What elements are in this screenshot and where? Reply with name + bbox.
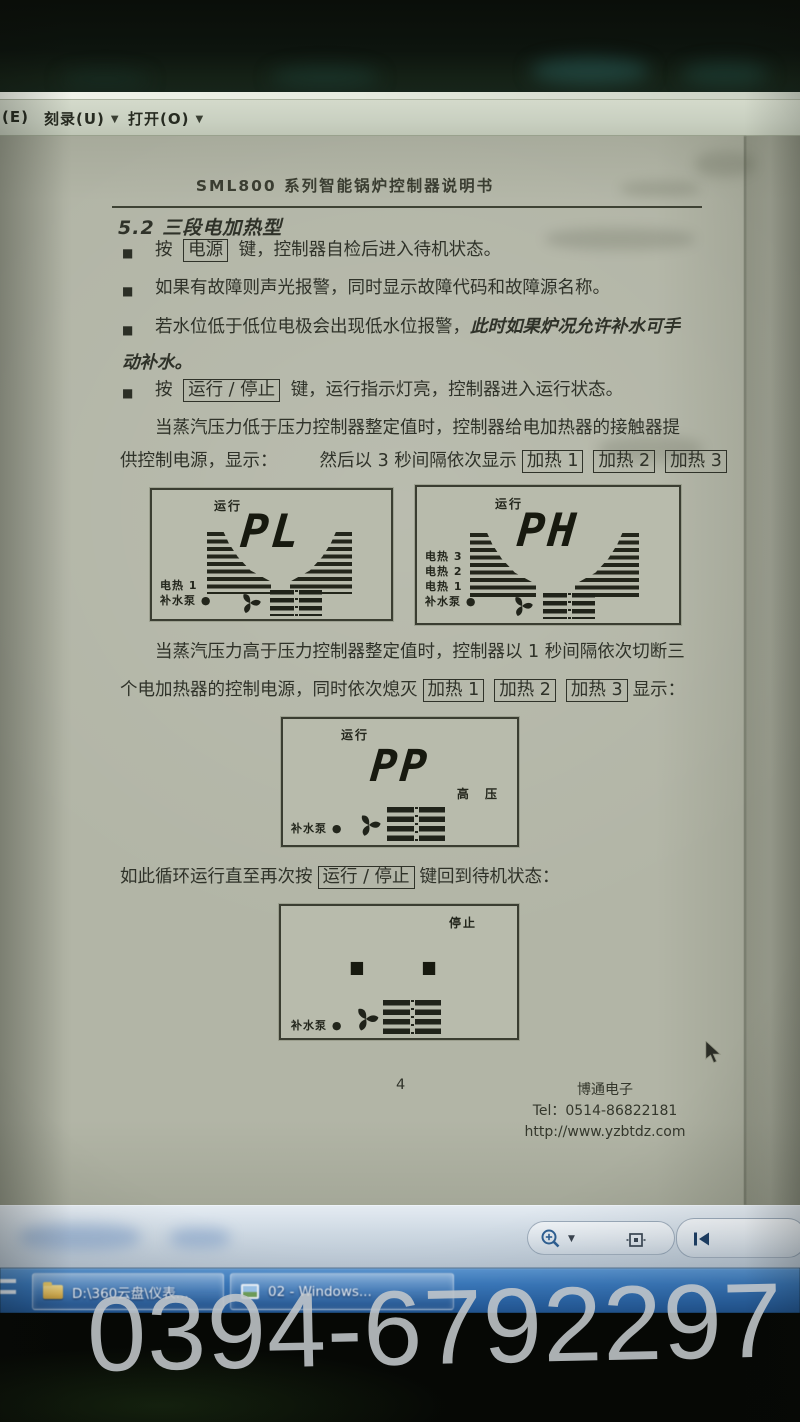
loop-line: 如此循环运行直至再次按运行 / 停止键回到待机状态：: [120, 866, 560, 889]
lcd-panel-pl: 运行 PL 电热 1 补水泵 ●: [150, 488, 393, 621]
publisher-tel: Tel：0514-86822181: [505, 1101, 705, 1122]
key-run-stop: 运行 / 停止: [183, 379, 280, 402]
key-heat1: 加热 1: [522, 450, 584, 473]
lcd-labels: 电热 3 电热 2 电热 1 补水泵 ●: [425, 549, 476, 609]
photo-viewer-toolbar: ▼: [0, 1205, 800, 1268]
bezel-reflection: [270, 66, 380, 88]
key-heat2: 加热 2: [593, 450, 655, 473]
toolbar-reflection: [20, 1224, 140, 1250]
lcd-labels: 电热 1 补水泵 ●: [160, 578, 211, 608]
para-high-line1: 当蒸汽压力高于压力控制器整定值时，控制器以 1 秒间隔依次切断三: [155, 641, 685, 664]
bullet-square-icon: ■: [122, 379, 155, 405]
chevron-down-icon: ▼: [111, 114, 119, 125]
key-power: 电源: [183, 239, 228, 262]
key-heat2: 加热 2: [494, 679, 556, 702]
zoom-button[interactable]: [540, 1228, 562, 1249]
key-heat3: 加热 3: [665, 450, 727, 473]
level-bars-icon: [387, 807, 445, 841]
toolbar-reflection: [170, 1228, 230, 1248]
bullet-lowwater-cont: 动补水。: [122, 352, 192, 375]
lcd-panel-standby: 停止 - - 补水泵 ●: [279, 904, 519, 1040]
magnifier-plus-icon: [540, 1228, 562, 1249]
document-page: SML800 系列智能锅炉控制器说明书 5.2 三段电加热型 ■ 按 电源 键，…: [0, 136, 800, 1205]
fan-icon: [509, 593, 535, 619]
window-top-edge: [0, 92, 800, 100]
menu-item-label: 刻录(U): [44, 108, 105, 129]
menu-item-open[interactable]: 打开(O) ▼: [128, 108, 203, 129]
level-bars-icon: [543, 593, 595, 619]
previous-button[interactable]: [693, 1231, 711, 1247]
bezel-reflection: [680, 62, 770, 86]
menu-item-label: (E): [2, 108, 29, 126]
lcd-labels: 补水泵 ●: [291, 821, 342, 836]
menu-item-label: 打开(O): [128, 108, 189, 129]
para-high-line2: 个电加热器的控制电源，同时依次熄灭加热 1加热 2加热 3显示：: [120, 679, 685, 702]
key-heat3: 加热 3: [566, 679, 628, 702]
page-number: 4: [396, 1077, 405, 1093]
level-bars-icon: [383, 1000, 441, 1034]
bullet-text: 若水位低于低位电极会出现低水位报警，此时如果炉况允许补水可手: [155, 316, 680, 342]
fan-icon: [355, 811, 383, 839]
menu-item-e[interactable]: (E): [2, 108, 29, 126]
actual-size-button[interactable]: [626, 1230, 646, 1250]
para-low-line1: 当蒸汽压力低于压力控制器整定值时，控制器给电加热器的接触器提: [155, 417, 680, 440]
key-run-stop: 运行 / 停止: [318, 866, 415, 889]
lcd-highpressure-label: 高 压: [457, 785, 503, 802]
bezel-reflection: [60, 70, 150, 88]
lcd-value: PL: [150, 504, 394, 558]
menu-bar: (E) 刻录(U) ▼ 打开(O) ▼: [0, 100, 800, 136]
actual-size-icon: [626, 1230, 646, 1250]
chevron-down-icon[interactable]: ▼: [568, 1234, 575, 1244]
level-bars-icon: [270, 590, 322, 616]
monitor-bezel-top: [0, 0, 800, 92]
bullet-fault: ■ 如果有故障则声光报警，同时显示故障代码和故障源名称。: [122, 277, 712, 303]
para-low-line2: 供控制电源，显示：然后以 3 秒间隔依次显示加热 1加热 2加热 3: [120, 450, 732, 473]
key-heat1: 加热 1: [423, 679, 485, 702]
doc-title: SML800 系列智能锅炉控制器说明书: [0, 174, 690, 196]
chevron-down-icon: ▼: [195, 114, 203, 125]
bullet-power: ■ 按 电源 键，控制器自检后进入待机状态。: [122, 239, 712, 265]
nav-group: [676, 1218, 800, 1258]
lcd-panel-pp: 运行 PP 高 压 补水泵 ●: [281, 717, 519, 847]
bullet-text: 按 电源 键，控制器自检后进入待机状态。: [155, 239, 501, 265]
watermark-phone-number: 0394-6792297: [86, 1267, 784, 1388]
zoom-fit-group: ▼: [527, 1221, 675, 1255]
bullet-lowwater: ■ 若水位低于低位电极会出现低水位报警，此时如果炉况允许补水可手: [122, 316, 712, 342]
bullet-square-icon: ■: [122, 316, 155, 342]
menu-item-burn[interactable]: 刻录(U) ▼: [44, 108, 119, 129]
photographed-screen: (E) 刻录(U) ▼ 打开(O) ▼ SML800 系列智能锅炉控制器说明书 …: [0, 0, 800, 1422]
ink-bleed: [695, 151, 755, 177]
section-title: 5.2 三段电加热型: [118, 213, 282, 240]
header-rule: [112, 206, 702, 208]
bullet-text: 按 运行 / 停止 键，运行指示灯亮，控制器进入运行状态。: [155, 379, 623, 405]
publisher-url: http://www.yzbtdz.com: [505, 1122, 705, 1143]
paper-edge-shadow: [746, 136, 800, 1205]
fan-icon: [351, 1004, 381, 1034]
bullet-text: 如果有故障则声光报警，同时显示故障代码和故障源名称。: [155, 277, 610, 303]
bullet-square-icon: ■: [122, 277, 155, 303]
bezel-reflection: [530, 58, 650, 84]
publisher-name: 博通电子: [505, 1080, 705, 1101]
bullet-square-icon: ■: [122, 239, 155, 265]
fan-icon: [237, 590, 263, 616]
bullet-runstop: ■ 按 运行 / 停止 键，运行指示灯亮，控制器进入运行状态。: [122, 379, 712, 405]
taskbar-left-edge: [0, 1279, 16, 1301]
lcd-panel-ph: 运行 PH 电热 3 电热 2 电热 1 补水泵 ●: [415, 485, 681, 625]
lcd-labels: 补水泵 ●: [291, 1018, 342, 1033]
folder-icon: [43, 1285, 63, 1299]
previous-icon: [693, 1231, 711, 1247]
mouse-cursor: [702, 1041, 724, 1065]
publisher-block: 博通电子 Tel：0514-86822181 http://www.yzbtdz…: [505, 1080, 705, 1143]
